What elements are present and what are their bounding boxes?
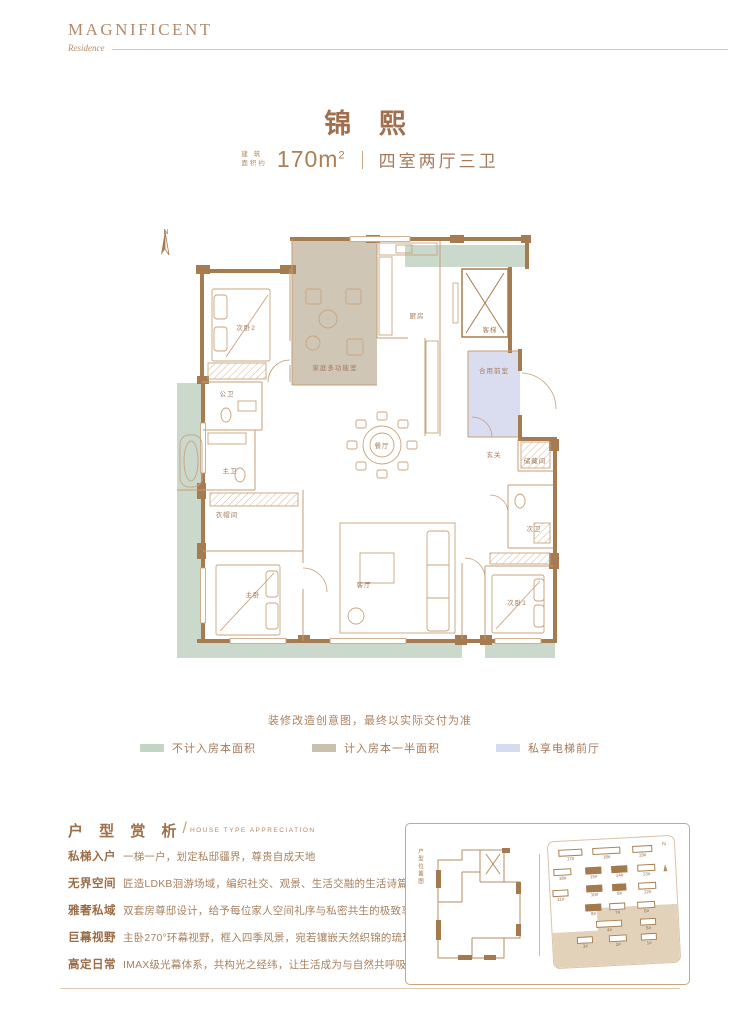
keyplan-box: 户型位置图 17#18#19#16#15#14#13#11#10#9#12#8#…: [405, 823, 690, 985]
area-value: 170m2: [277, 146, 346, 173]
legend-swatch-lavender: [496, 744, 520, 752]
site-plan: 17#18#19#16#15#14#13#11#10#9#12#8#7#6#4#…: [547, 835, 682, 970]
footer-divider-line: [60, 988, 680, 989]
feature-panoramic-view: 巨幕视野 主卧270°环幕视野，框入四季风景，宛若镶嵌天然织锦的琉璃屏风: [68, 929, 398, 945]
feature-private-elevator: 私梯入户 一梯一户，划定私邸疆界，尊贵自成天地: [68, 848, 398, 864]
site-building-label: 5#: [640, 925, 656, 932]
site-building-9: 9#: [612, 883, 627, 897]
site-building-label: 19#: [632, 852, 652, 859]
room-label-bedroom-1: 次卧1: [507, 597, 527, 607]
section-subtitle: HOUSE TYPE APPRECIATION: [190, 827, 316, 834]
site-building-15: 15#: [585, 867, 602, 881]
site-building-label: 12#: [638, 889, 656, 896]
site-building-label: 15#: [586, 874, 602, 881]
feature-term: 私梯入户: [68, 848, 116, 864]
site-building-3: 3#: [577, 936, 594, 950]
feature-term: 高定日常: [68, 956, 116, 972]
site-building-13: 13#: [637, 864, 656, 878]
keyplan-divider: [539, 854, 540, 956]
site-building-10: 10#: [586, 885, 603, 899]
site-building-label: 9#: [612, 890, 626, 897]
area-sup: 2: [338, 149, 345, 161]
site-building-1: 1#: [641, 933, 658, 947]
legend-label: 不计入房本面积: [172, 740, 256, 756]
legend-item-elevator-lobby: 私享电梯前厅: [496, 740, 600, 756]
header-divider-line: [112, 49, 728, 50]
site-building-6: 6#: [637, 901, 656, 915]
site-compass-arrow-icon: [662, 847, 667, 871]
site-building-16: 16#: [553, 868, 572, 882]
room-label-foyer: 玄关: [487, 449, 502, 459]
room-label-living-room: 客厅: [357, 579, 372, 589]
site-building-8: 8#: [585, 904, 602, 918]
site-building-17: 17#: [558, 849, 583, 863]
site-building-label: 2#: [609, 941, 627, 948]
site-building-label: 10#: [586, 892, 602, 899]
feature-daily-luxury: 高定日常 IMAX级光幕体系，共构光之经纬，让生活成为与自然共呼吸的艺术: [68, 956, 398, 972]
site-building-5: 5#: [640, 918, 657, 932]
room-label-shared-lobby: 合用前室: [479, 365, 509, 375]
site-building-label: 18#: [593, 854, 621, 861]
site-building-label: 13#: [637, 871, 655, 878]
room-labels: 次卧2家庭多功能室厨房客梯合用前室公卫主卫衣帽间主卧餐厅玄关储藏间次卫客厅次卧1: [150, 223, 590, 685]
site-building-label: 17#: [559, 856, 583, 863]
area-caption-line2: 面积约: [241, 160, 267, 168]
legend-item-excluded-area: 不计入房本面积: [140, 740, 256, 756]
section-slash: /: [183, 820, 187, 838]
room-label-guest-bath: 公卫: [220, 388, 235, 398]
site-building-label: 16#: [554, 875, 572, 882]
area-caption: 建 筑 面积约: [241, 151, 267, 168]
feature-list: 私梯入户 一梯一户，划定私邸疆界，尊贵自成天地 无界空间 匠造LDKB洄游场域，…: [68, 848, 398, 983]
room-label-bedroom-2: 次卧2: [236, 322, 256, 332]
site-building-label: 14#: [611, 872, 627, 879]
brand-subtitle: Residence: [68, 43, 213, 53]
site-building-7: 7#: [609, 902, 626, 916]
legend: 不计入房本面积 计入房本一半面积 私享电梯前厅: [0, 740, 740, 756]
site-building-19: 19#: [632, 845, 653, 859]
room-label-dining-room: 餐厅: [375, 440, 390, 450]
room-label-family-room: 家庭多功能室: [313, 362, 358, 372]
site-building-12: 12#: [638, 882, 657, 896]
room-label-master-bath: 主卫: [223, 465, 238, 475]
site-building-11: 11#: [552, 889, 569, 903]
site-building-label: 8#: [585, 911, 601, 918]
site-building-2: 2#: [609, 934, 628, 948]
site-compass: N: [659, 842, 670, 865]
spec-divider: [362, 151, 363, 169]
brand-name: MAGNIFICENT: [68, 20, 213, 40]
floor-plan: N 次卧2家庭多功能室厨房客梯合用前室公卫主卫衣帽间主卧餐厅玄关储藏间次卫客厅次…: [150, 223, 590, 685]
feature-term: 巨幕视野: [68, 929, 116, 945]
site-building-4: 4#: [596, 920, 623, 934]
section-header: 户 型 赏 析 / HOUSE TYPE APPRECIATION: [68, 820, 316, 841]
legend-label: 计入房本一半面积: [344, 740, 440, 756]
legend-item-half-area: 计入房本一半面积: [312, 740, 440, 756]
area-caption-line1: 建 筑: [241, 151, 267, 159]
room-label-storage-room: 储藏间: [524, 455, 547, 465]
section-title: 户 型 赏 析: [68, 820, 183, 841]
site-building-label: 6#: [637, 908, 655, 915]
layout-value: 四室两厅三卫: [379, 147, 499, 172]
room-label-kitchen: 厨房: [410, 310, 425, 320]
feature-term: 无界空间: [68, 875, 116, 891]
feature-term: 雅奢私域: [68, 902, 116, 918]
site-building-label: 11#: [553, 896, 569, 903]
disclaimer-note: 装修改造创意图，最终以实际交付为准: [0, 712, 740, 728]
feature-desc: 双套房尊邸设计，给予每位家人空间礼序与私密共生的极致享受: [123, 903, 423, 918]
mini-floorplan: [428, 840, 532, 968]
room-label-master-bedroom: 主卧: [246, 589, 261, 599]
room-label-second-bath: 次卫: [527, 523, 542, 533]
unit-spec: 建 筑 面积约 170m2 四室两厅三卫: [0, 146, 740, 173]
feature-boundless-space: 无界空间 匠造LDKB洄游场域，编织社交、观景、生活交融的生活诗篇: [68, 875, 398, 891]
site-building-label: 4#: [596, 927, 622, 934]
feature-desc: 匠造LDKB洄游场域，编织社交、观景、生活交融的生活诗篇: [123, 876, 408, 891]
feature-desc: IMAX级光幕体系，共构光之经纬，让生活成为与自然共呼吸的艺术: [123, 957, 438, 972]
site-building-label: 3#: [577, 943, 593, 950]
room-label-passenger-elevator: 客梯: [483, 324, 498, 334]
legend-swatch-tan: [312, 744, 336, 752]
site-building-label: 1#: [641, 940, 657, 947]
site-building-18: 18#: [592, 847, 621, 861]
feature-private-suites: 雅奢私域 双套房尊邸设计，给予每位家人空间礼序与私密共生的极致享受: [68, 902, 398, 918]
site-building-14: 14#: [611, 865, 628, 879]
feature-desc: 一梯一户，划定私邸疆界，尊贵自成天地: [123, 849, 316, 864]
legend-swatch-green: [140, 744, 164, 752]
legend-label: 私享电梯前厅: [528, 740, 600, 756]
page-title: 锦 熙: [0, 102, 740, 141]
room-label-walk-in-closet: 衣帽间: [216, 509, 239, 519]
site-building-label: 7#: [609, 909, 625, 916]
feature-desc: 主卧270°环幕视野，框入四季风景，宛若镶嵌天然织锦的琉璃屏风: [123, 930, 434, 945]
keyplan-vertical-label: 户型位置图: [416, 848, 424, 886]
